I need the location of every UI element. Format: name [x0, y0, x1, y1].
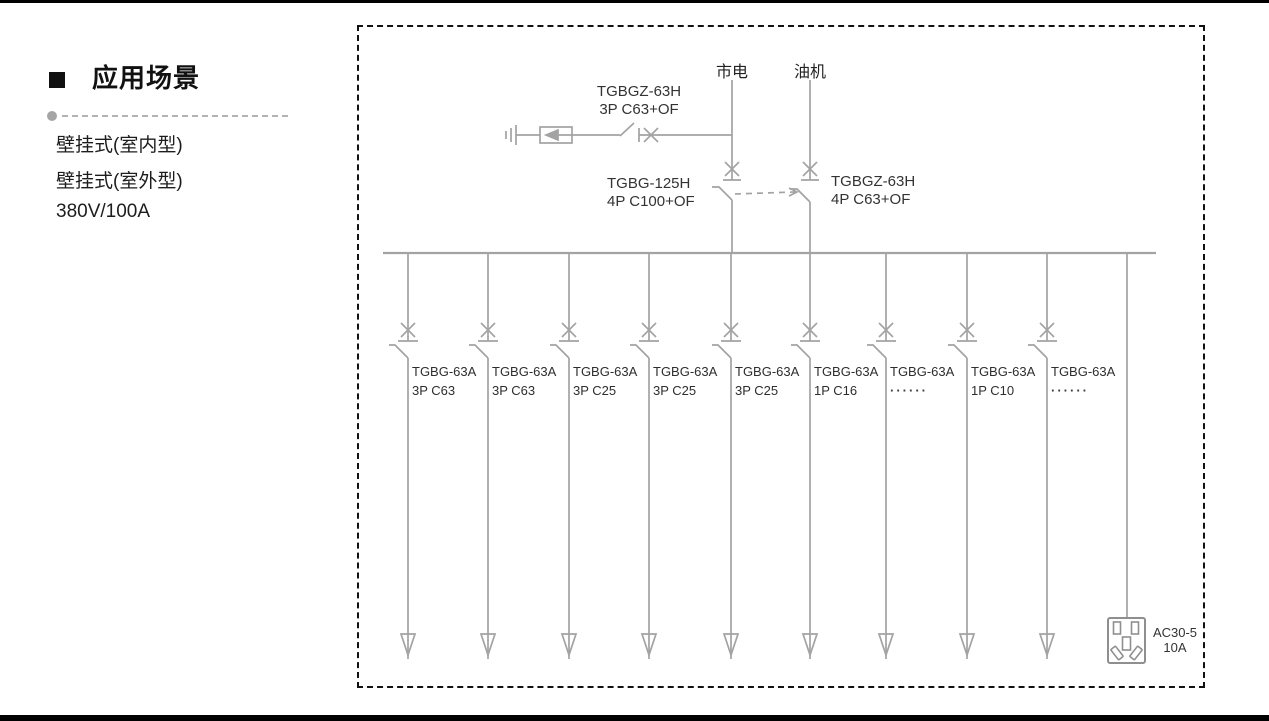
branch-model: TGBG-63A [814, 362, 894, 381]
branch-model: TGBG-63A [735, 362, 815, 381]
branch-breaker-blade [1028, 345, 1047, 358]
socket-icon [1108, 618, 1145, 663]
source-label-generator: 油机 [790, 58, 830, 82]
feeder-branch [1028, 253, 1057, 659]
branch-breaker-blade [389, 345, 408, 358]
branch-breaker-blade [948, 345, 967, 358]
feeder-branch [948, 253, 977, 659]
source-label-mains: 市电 [712, 58, 752, 82]
branch-model: TGBG-63A [573, 362, 653, 381]
branch-breaker-blade [469, 345, 488, 358]
branch-model: TGBG-63A [412, 362, 492, 381]
spd-breaker-label: TGBGZ-63H 3P C63+OF [569, 83, 709, 119]
spd-icon [540, 127, 572, 143]
generator-breaker-label: TGBGZ-63H 4P C63+OF [831, 173, 915, 209]
branch-spec: 3P C63 [492, 381, 572, 400]
feeder-branch [469, 253, 498, 659]
feeder-branch [630, 253, 659, 659]
socket-feeder [1108, 253, 1145, 663]
branch-spec: 3P C25 [735, 381, 815, 400]
branch-spec: 1P C16 [814, 381, 894, 400]
mains-incomer-line [712, 80, 741, 254]
main-breaker-blade [712, 187, 732, 200]
feeder-branch [867, 253, 896, 659]
branch-spec: 3P C25 [573, 381, 653, 400]
interlock-dashed-line [735, 188, 797, 196]
branch-label: TGBG-63A······ [1051, 362, 1131, 400]
branch-breaker-blade [791, 345, 810, 358]
branch-label: TGBG-63A3P C63 [492, 362, 572, 400]
main-breaker-model: TGBG-125H [607, 175, 695, 193]
spd-breaker-model: TGBGZ-63H [569, 83, 709, 101]
branch-label: TGBG-63A1P C16 [814, 362, 894, 400]
branch-spec: 1P C10 [971, 381, 1051, 400]
socket-rating: 10A [1149, 640, 1201, 655]
branch-label: TGBG-63A3P C63 [412, 362, 492, 400]
branch-breaker-blade [712, 345, 731, 358]
socket-label: AC30-5 10A [1149, 625, 1201, 655]
branch-model: TGBG-63A [890, 362, 970, 381]
ground-icon [506, 125, 516, 145]
branch-breaker-blade [867, 345, 886, 358]
branch-label: TGBG-63A3P C25 [653, 362, 733, 400]
generator-incomer-line [790, 80, 819, 254]
feeder-branch [550, 253, 579, 659]
main-breaker-label: TGBG-125H 4P C100+OF [607, 175, 695, 211]
generator-breaker-model: TGBGZ-63H [831, 173, 915, 191]
main-breaker-spec: 4P C100+OF [607, 193, 695, 211]
feeder-branch [389, 253, 418, 659]
branch-spec: ······ [890, 381, 970, 400]
branch-breaker-blade [550, 345, 569, 358]
spd-branch [506, 123, 732, 145]
spd-breaker-symbol [620, 123, 732, 142]
branch-label: TGBG-63A······ [890, 362, 970, 400]
socket-model: AC30-5 [1149, 625, 1201, 640]
branch-model: TGBG-63A [492, 362, 572, 381]
branch-spec: 3P C25 [653, 381, 733, 400]
branch-label: TGBG-63A3P C25 [573, 362, 653, 400]
feeder-branches [389, 253, 1057, 659]
feeder-branch [712, 253, 741, 659]
branch-label: TGBG-63A1P C10 [971, 362, 1051, 400]
branch-model: TGBG-63A [653, 362, 733, 381]
branch-spec: ······ [1051, 381, 1131, 400]
generator-breaker-spec: 4P C63+OF [831, 191, 915, 209]
feeder-branch [791, 253, 820, 659]
branch-model: TGBG-63A [971, 362, 1051, 381]
branch-breaker-blade [630, 345, 649, 358]
branch-spec: 3P C63 [412, 381, 492, 400]
spd-breaker-spec: 3P C63+OF [569, 101, 709, 119]
branch-label: TGBG-63A3P C25 [735, 362, 815, 400]
branch-model: TGBG-63A [1051, 362, 1131, 381]
